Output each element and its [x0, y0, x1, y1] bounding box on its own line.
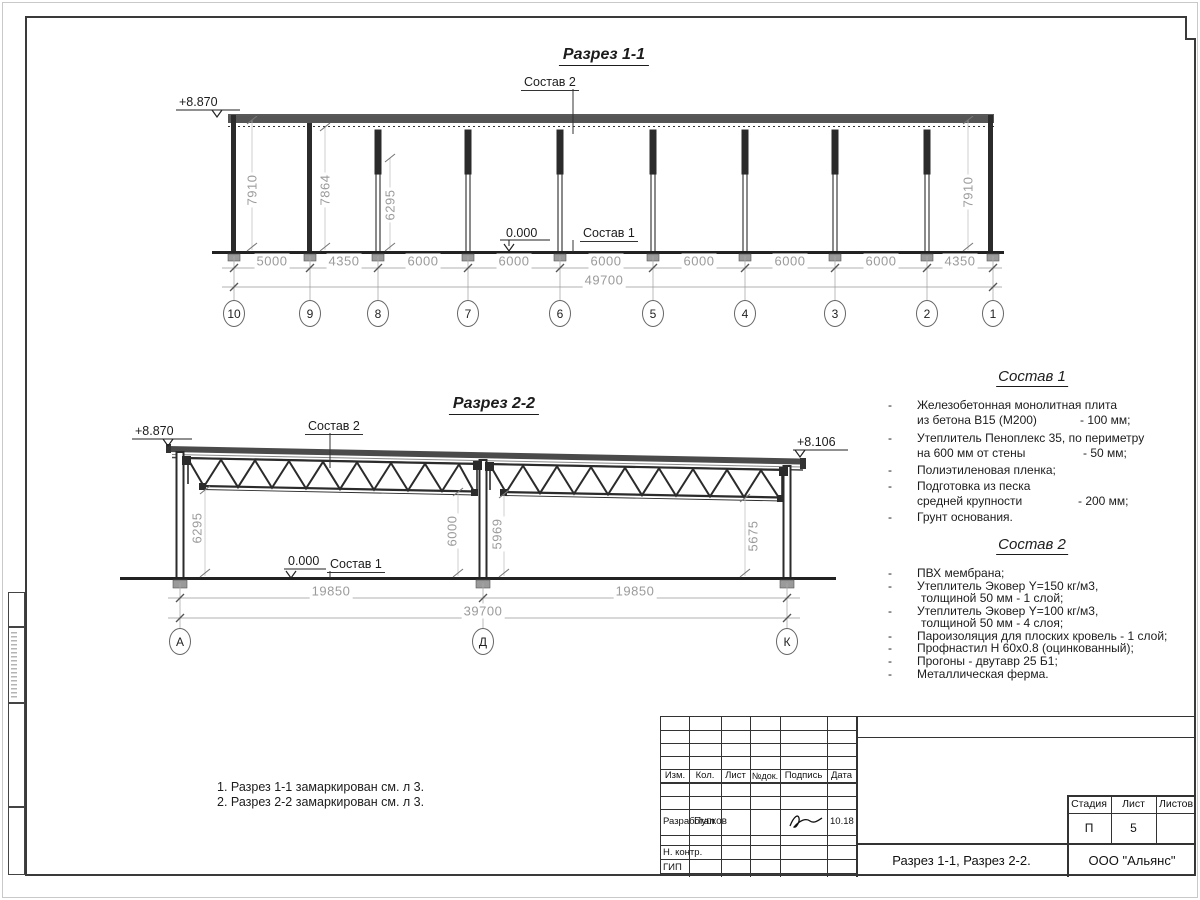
signature	[786, 812, 824, 832]
section2-level-zero: 0.000	[288, 554, 319, 568]
section2-level-right: +8.106	[797, 435, 836, 449]
list-dash: -	[888, 641, 892, 655]
grid-bubble: 1	[982, 300, 1004, 327]
list-item: толщиной 50 мм - 4 слоя;	[921, 616, 1063, 630]
grid-bubble: А	[169, 628, 191, 655]
height-dim: 5969	[490, 517, 505, 552]
sostav2-title: Состав 2	[996, 536, 1068, 555]
section2-title: Разрез 2-2	[449, 395, 539, 415]
list-item-value: - 200 мм;	[1078, 494, 1129, 508]
total-dim: 39700	[462, 604, 505, 619]
tb-sheets-value	[1156, 813, 1196, 843]
section2-sostav2-label: Состав 2	[305, 419, 363, 435]
bay-dim: 6000	[406, 254, 441, 269]
drawing-sheet: Разрез 1-1 +8.870 0.000 Состав 2 Состав …	[0, 0, 1200, 900]
list-item: средней крупности	[917, 494, 1022, 508]
bay-dim: 6000	[864, 254, 899, 269]
list-dash: -	[888, 654, 892, 668]
list-item-value: - 100 мм;	[1080, 413, 1131, 427]
bay-dim: 6000	[682, 254, 717, 269]
list-item: толщиной 50 мм - 1 слой;	[921, 591, 1063, 605]
list-item: ПВХ мембрана;	[917, 566, 1004, 580]
tb-header-podpis: Подпись	[780, 769, 827, 782]
tb-gip-label: ГИП	[663, 862, 682, 873]
bay-dim: 6000	[773, 254, 808, 269]
list-dash: -	[888, 566, 892, 580]
tb-sheet-value: 5	[1111, 813, 1156, 843]
grid-bubble: 3	[824, 300, 846, 327]
section1-sostav2-label: Состав 2	[521, 75, 579, 91]
height-dim: 7910	[961, 175, 976, 210]
tb-sheet-label: Лист	[1111, 795, 1156, 813]
height-dim: 6295	[383, 188, 398, 223]
list-item: из бетона В15 (М200)	[917, 413, 1037, 427]
list-dash: -	[888, 510, 892, 524]
tb-header-list: Лист	[721, 769, 750, 782]
grid-bubble: 6	[549, 300, 571, 327]
list-item-value: - 50 мм;	[1083, 446, 1127, 460]
span-dim: 19850	[310, 584, 353, 599]
section2-level-left: +8.870	[135, 424, 174, 438]
span-dim: 19850	[614, 584, 657, 599]
grid-bubble: 7	[457, 300, 479, 327]
grid-bubble: 10	[223, 300, 245, 327]
grid-bubble: 8	[367, 300, 389, 327]
list-item: Прогоны - двутавр 25 Б1;	[917, 654, 1058, 668]
tb-developed-name: Пупков	[694, 816, 727, 827]
bay-dim: 6000	[589, 254, 624, 269]
height-dim: 6000	[445, 514, 460, 549]
sostav1-title: Состав 1	[996, 368, 1068, 387]
title-block: Изм. Кол. Лист №док. Подпись Дата Разраб…	[660, 716, 1195, 876]
bay-dim: 4350	[327, 254, 362, 269]
bay-dim: 6000	[497, 254, 532, 269]
tb-header-izm: Изм.	[661, 769, 689, 782]
bay-dim: 4350	[943, 254, 978, 269]
grid-bubble: Д	[472, 628, 494, 655]
list-dash: -	[888, 667, 892, 681]
height-dim: 6295	[190, 511, 205, 546]
section1-title: Разрез 1-1	[559, 46, 649, 66]
section1-level-zero: 0.000	[506, 226, 537, 240]
list-item: Металлическая ферма.	[917, 667, 1049, 681]
section1-level-top: +8.870	[179, 95, 218, 109]
grid-bubble: К	[776, 628, 798, 655]
height-dim: 7910	[245, 173, 260, 208]
height-dim: 5675	[746, 519, 761, 554]
note-line-1: 1. Разрез 1-1 замаркирован см. л 3.	[217, 780, 424, 794]
list-item: Железобетонная монолитная плита	[917, 398, 1117, 412]
note-line-2: 2. Разрез 2-2 замаркирован см. л 3.	[217, 795, 424, 809]
list-item: Профнастил Н 60х0.8 (оцинкованный);	[917, 641, 1134, 655]
list-dash: -	[888, 579, 892, 593]
height-dim: 7864	[318, 173, 333, 208]
total-dim: 49700	[583, 273, 626, 288]
tb-sheets-label: Листов	[1156, 795, 1196, 813]
list-dash: -	[888, 604, 892, 618]
tb-doc-title: Разрез 1-1, Разрез 2-2.	[856, 844, 1067, 877]
list-dash: -	[888, 398, 892, 412]
list-item: на 600 мм от стены	[917, 446, 1025, 460]
list-item: Подготовка из песка	[917, 479, 1030, 493]
list-item: Утеплитель Пеноплекс 35, по периметру	[917, 431, 1144, 445]
bay-dim: 5000	[255, 254, 290, 269]
list-dash: -	[888, 463, 892, 477]
tb-company: ООО "Альянс"	[1068, 844, 1196, 877]
list-dash: -	[888, 431, 892, 445]
section2-sostav1-label: Состав 1	[327, 557, 385, 573]
grid-bubble: 5	[642, 300, 664, 327]
list-dash: -	[888, 479, 892, 493]
list-item: Полиэтиленовая пленка;	[917, 463, 1056, 477]
tb-header-data: Дата	[827, 769, 856, 782]
tb-stage-value: П	[1067, 813, 1111, 843]
tb-header-ndok: №док.	[750, 769, 780, 782]
grid-bubble: 9	[299, 300, 321, 327]
tb-stage-label: Стадия	[1067, 795, 1111, 813]
list-item: Грунт основания.	[917, 510, 1013, 524]
grid-bubble: 4	[734, 300, 756, 327]
section1-sostav1-label: Состав 1	[580, 226, 638, 242]
tb-header-kol: Кол.	[689, 769, 721, 782]
tb-ncontr-label: Н. контр.	[663, 847, 702, 858]
tb-developed-date: 10.18	[830, 816, 854, 827]
grid-bubble: 2	[916, 300, 938, 327]
